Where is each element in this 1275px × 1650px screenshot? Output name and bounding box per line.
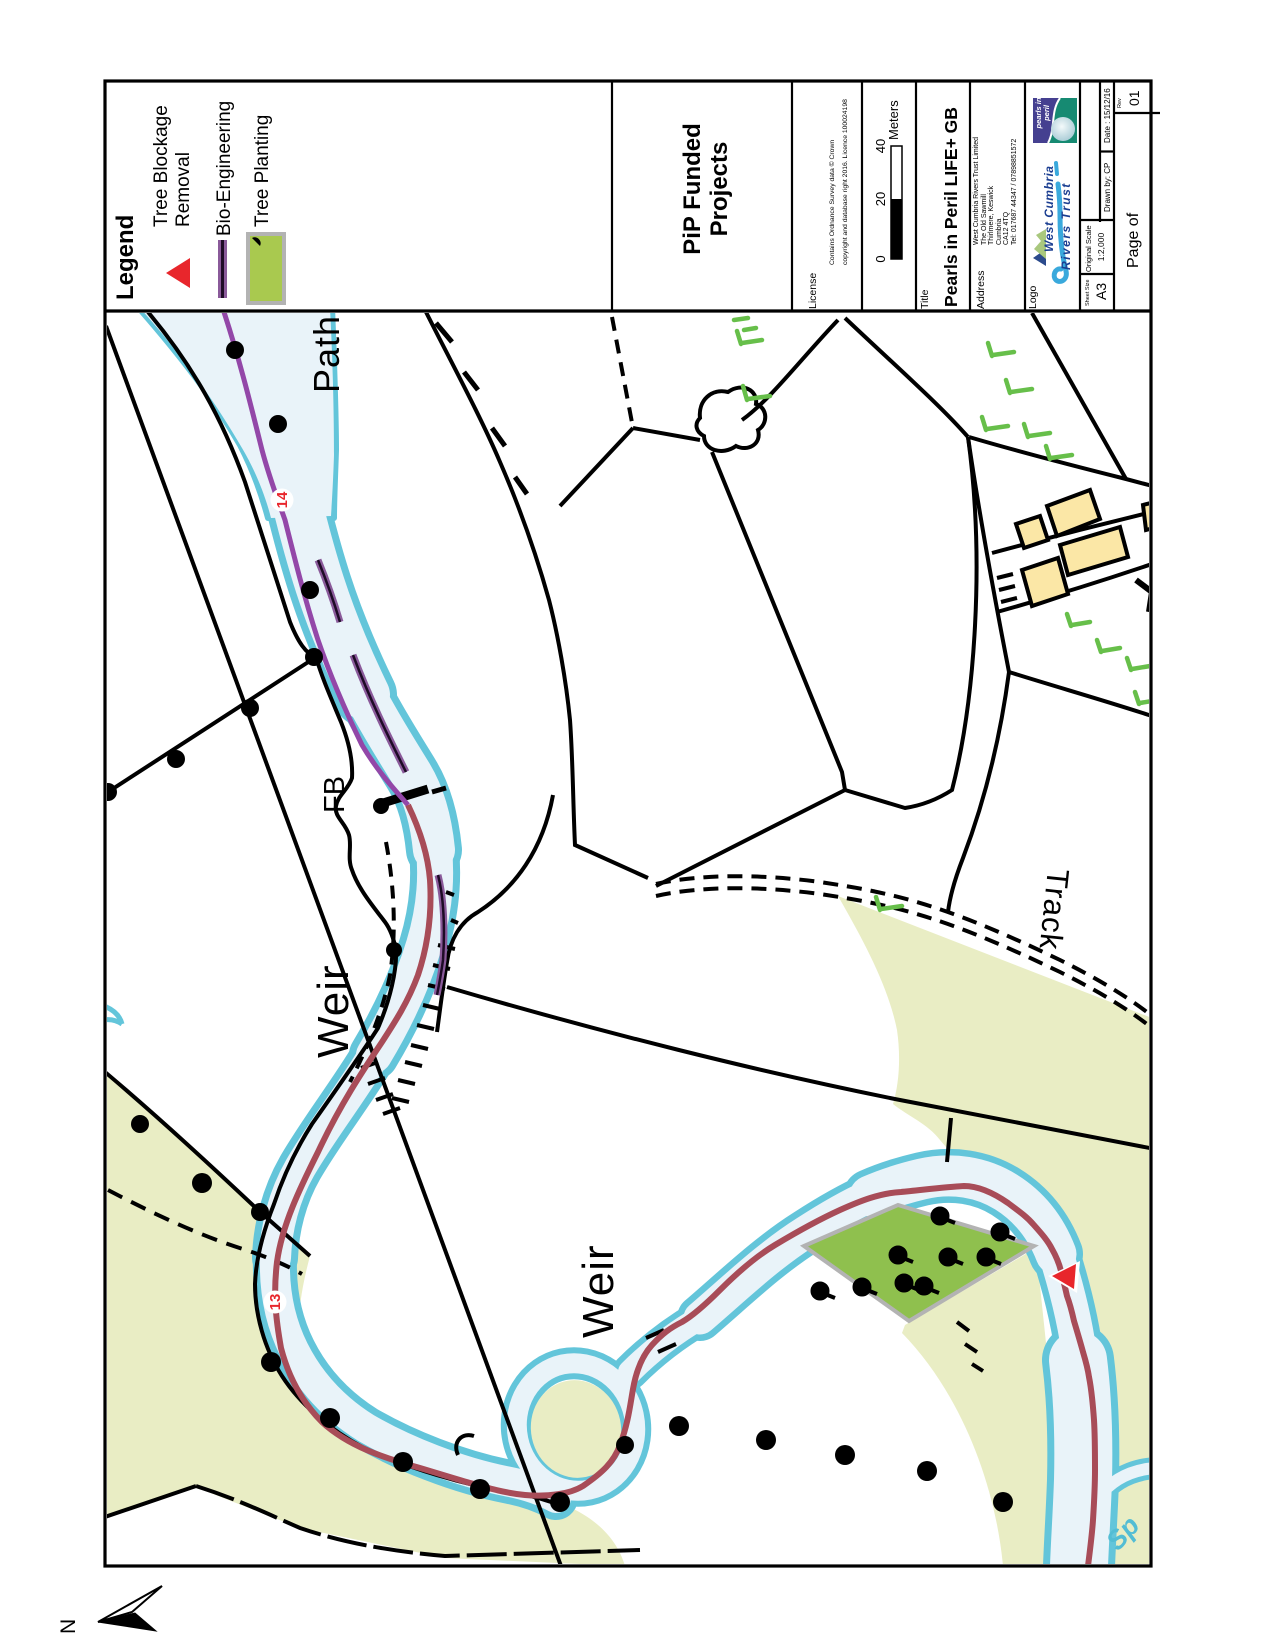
svg-text:Original Scale: Original Scale <box>1084 225 1093 272</box>
svg-text:Bio-Engineering: Bio-Engineering <box>214 101 235 236</box>
svg-text:Date : 15/12/16: Date : 15/12/16 <box>1103 88 1112 143</box>
svg-text:CA12 4TQ: CA12 4TQ <box>1003 211 1010 245</box>
svg-text:1:2,000: 1:2,000 <box>1096 233 1106 262</box>
svg-text:Rev: Rev <box>1117 98 1123 108</box>
svg-text:N: N <box>57 1619 80 1634</box>
svg-text:PiP Funded: PiP Funded <box>679 123 706 255</box>
svg-text:Projects: Projects <box>706 142 733 237</box>
svg-text:A3: A3 <box>1093 283 1109 300</box>
svg-text:License: License <box>807 273 819 309</box>
svg-text:Rivers Trust: Rivers Trust <box>1059 182 1073 270</box>
svg-text:Weir: Weir <box>574 1244 623 1338</box>
svg-text:Path: Path <box>306 315 347 393</box>
svg-text:Sheet Size: Sheet Size <box>1085 279 1091 306</box>
svg-text:13: 13 <box>267 1294 284 1311</box>
svg-text:Legend: Legend <box>112 215 139 300</box>
svg-text:Tree Blockage: Tree Blockage <box>151 105 172 227</box>
svg-text:Page of: Page of <box>1125 212 1142 268</box>
svg-text:Tel: 017687 44347 / 0789885157: Tel: 017687 44347 / 07898851572 <box>1011 139 1018 245</box>
svg-text:0: 0 <box>873 255 888 262</box>
svg-text:Contains Ordnance Survey data: Contains Ordnance Survey data © Crown <box>828 140 836 265</box>
svg-text:The Old Sawmill: The Old Sawmill <box>981 194 988 245</box>
svg-text:copyright and database right 2: copyright and database right 2016. Licen… <box>842 99 849 265</box>
svg-text:West Cumbria Rivers Trust Limi: West Cumbria Rivers Trust Limited <box>973 137 980 245</box>
svg-text:14: 14 <box>274 491 291 508</box>
svg-text:Title: Title <box>919 289 931 309</box>
svg-text:peril: peril <box>1042 104 1051 122</box>
svg-text:Removal: Removal <box>173 152 194 227</box>
svg-text:West Cumbria: West Cumbria <box>1042 166 1056 252</box>
svg-text:Cumbria: Cumbria <box>996 218 1003 245</box>
svg-text:Weir: Weir <box>309 964 358 1058</box>
svg-text:01: 01 <box>1126 90 1142 106</box>
svg-text:20: 20 <box>873 192 888 206</box>
svg-text:Pearls in Peril LIFE+ GB: Pearls in Peril LIFE+ GB <box>941 107 961 307</box>
svg-text:Logo: Logo <box>1027 285 1039 309</box>
svg-text:Meters: Meters <box>886 100 901 140</box>
svg-text:Thirlmere, Keswick: Thirlmere, Keswick <box>988 185 995 245</box>
svg-text:Tree Planting: Tree Planting <box>252 115 273 227</box>
svg-text:Address: Address <box>975 270 987 309</box>
svg-text:Drawn by: CP: Drawn by: CP <box>1103 163 1112 212</box>
svg-text:FB: FB <box>319 776 351 813</box>
